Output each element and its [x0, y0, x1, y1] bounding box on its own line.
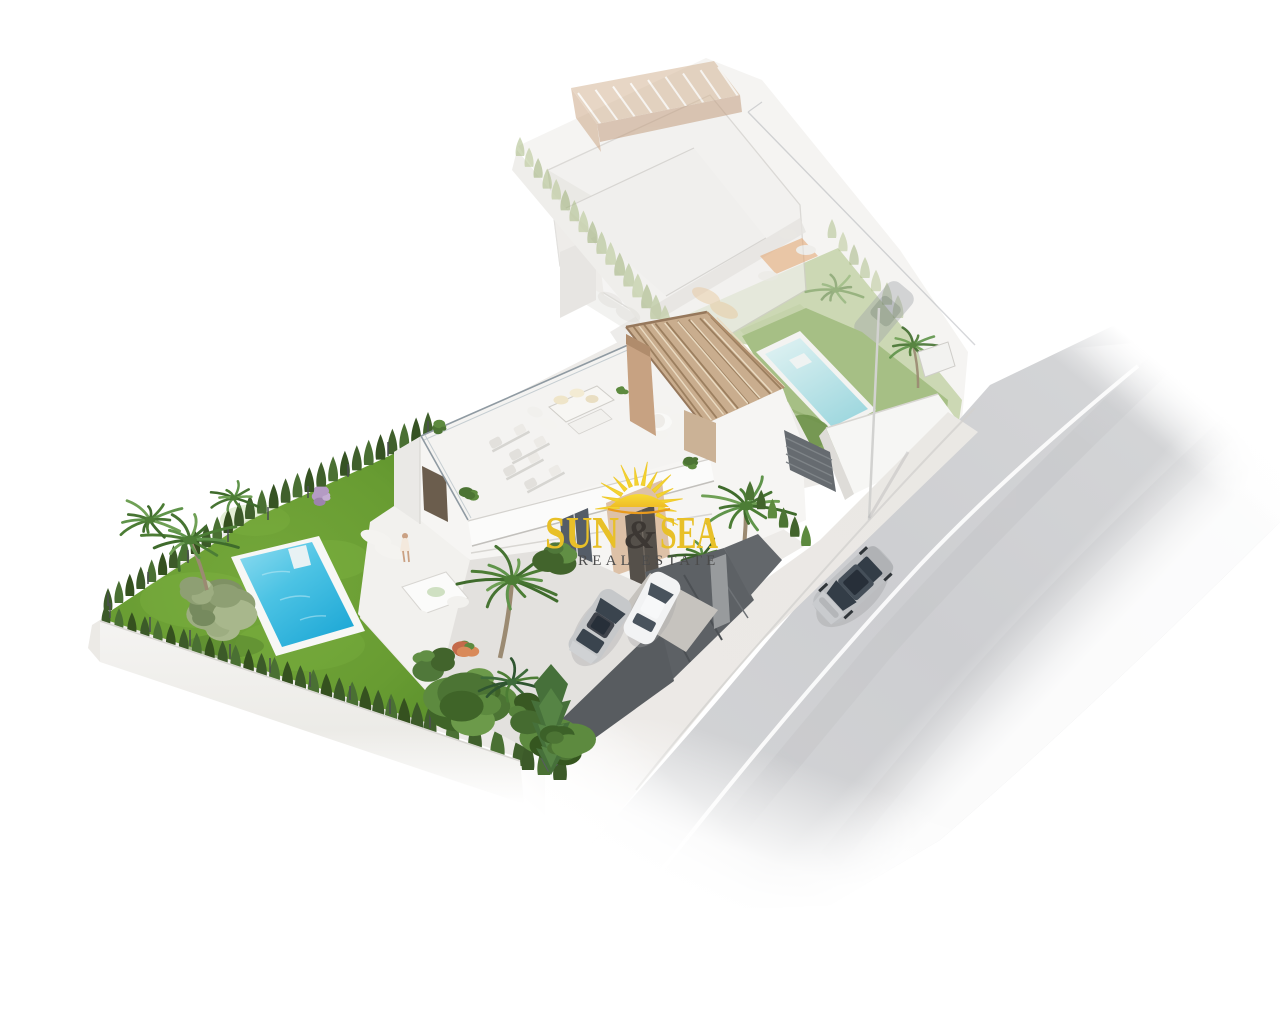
svg-text:REAL ESTATE: REAL ESTATE [578, 553, 720, 569]
svg-text:SEA: SEA [660, 508, 718, 558]
svg-text:SUN: SUN [545, 508, 619, 558]
svg-text:&: & [624, 512, 655, 557]
